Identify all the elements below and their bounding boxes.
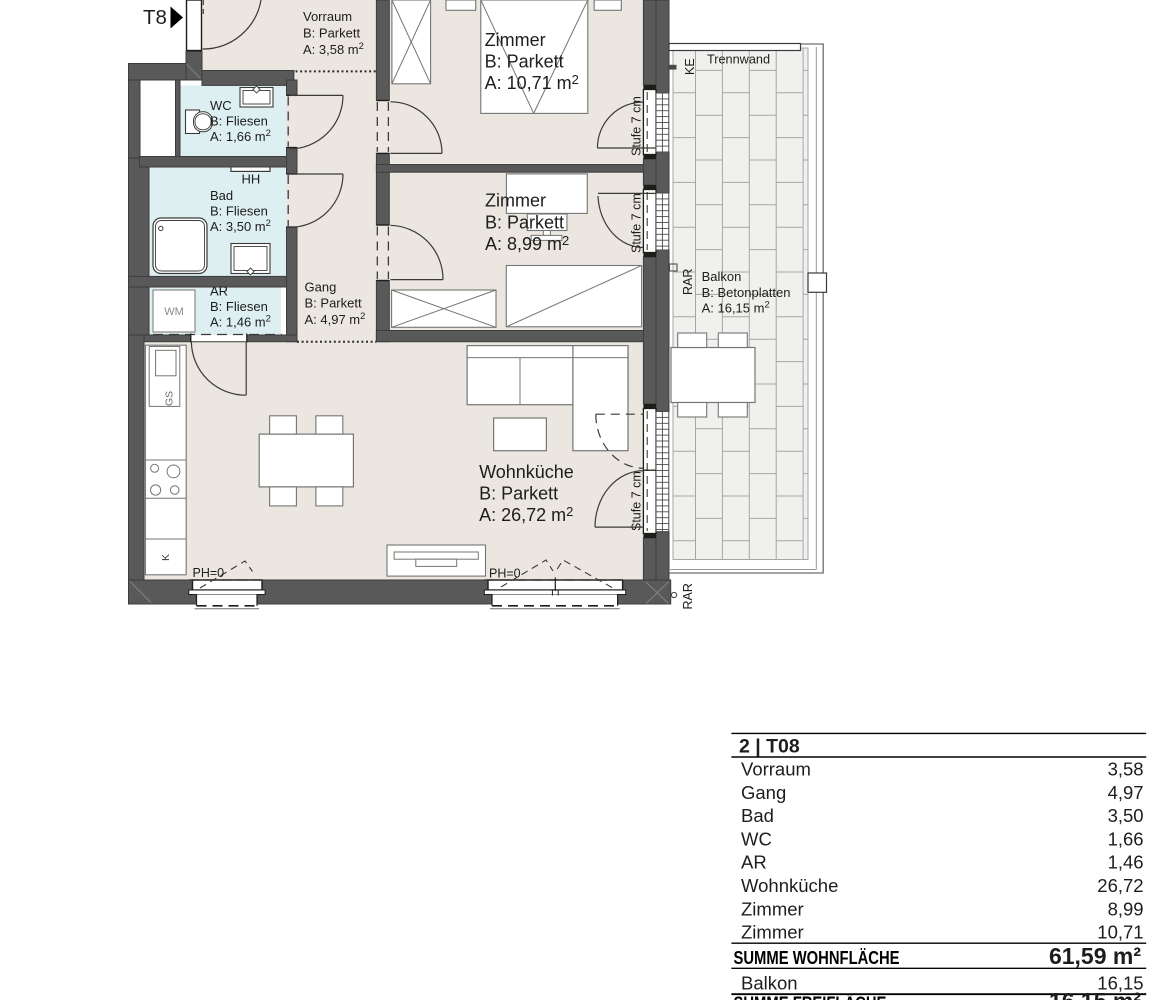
svg-text:10,71: 10,71 (1097, 922, 1143, 943)
svg-text:RAR: RAR (681, 583, 695, 609)
svg-text:Trennwand: Trennwand (707, 53, 770, 67)
svg-text:AR: AR (741, 852, 767, 873)
svg-text:A: 26,72 m2: A: 26,72 m2 (479, 504, 573, 525)
svg-text:Stufe 7 cm: Stufe 7 cm (630, 193, 644, 253)
svg-text:Gang: Gang (305, 280, 337, 295)
svg-text:4,97: 4,97 (1108, 782, 1144, 803)
svg-text:WM: WM (164, 306, 184, 318)
svg-text:A: 8,99 m2: A: 8,99 m2 (485, 233, 569, 254)
svg-text:WC: WC (210, 98, 232, 113)
svg-text:K: K (160, 554, 172, 561)
svg-text:1,66: 1,66 (1108, 828, 1144, 849)
svg-text:Vorraum: Vorraum (741, 759, 811, 780)
svg-text:AR: AR (210, 284, 228, 299)
svg-text:A: 3,58 m2: A: 3,58 m2 (303, 40, 364, 57)
svg-text:26,72: 26,72 (1097, 875, 1143, 896)
svg-text:B: Parkett: B: Parkett (485, 212, 564, 232)
svg-text:2 | T08: 2 | T08 (739, 736, 800, 758)
svg-text:Balkon: Balkon (702, 269, 742, 284)
svg-text:A: 10,71 m2: A: 10,71 m2 (485, 72, 579, 93)
svg-text:Vorraum: Vorraum (303, 9, 352, 24)
svg-text:16,15 m²: 16,15 m² (1049, 988, 1141, 1000)
svg-text:Zimmer: Zimmer (485, 191, 546, 211)
svg-text:A: 3,50 m2: A: 3,50 m2 (210, 217, 271, 234)
svg-text:Wohnküche: Wohnküche (479, 462, 574, 482)
svg-text:8,99: 8,99 (1108, 898, 1144, 919)
svg-text:A: 1,66 m2: A: 1,66 m2 (210, 127, 271, 144)
svg-text:B: Parkett: B: Parkett (305, 296, 362, 311)
svg-text:PH=0: PH=0 (193, 566, 225, 580)
svg-text:B: Fliesen: B: Fliesen (210, 299, 268, 314)
svg-text:B: Parkett: B: Parkett (303, 25, 360, 40)
svg-text:A: 16,15 m2: A: 16,15 m2 (702, 299, 770, 316)
svg-text:GS: GS (164, 391, 176, 406)
svg-text:PH=0: PH=0 (489, 567, 521, 581)
svg-text:SUMME FREIFLÄCHE: SUMME FREIFLÄCHE (734, 993, 887, 1000)
svg-text:SUMME WOHNFLÄCHE: SUMME WOHNFLÄCHE (734, 947, 900, 968)
svg-text:Zimmer: Zimmer (741, 898, 804, 919)
svg-text:Zimmer: Zimmer (485, 30, 546, 50)
svg-text:Gang: Gang (741, 782, 786, 803)
svg-text:B: Parkett: B: Parkett (485, 52, 564, 72)
svg-text:KE: KE (683, 58, 697, 75)
svg-text:Stufe 7 cm: Stufe 7 cm (630, 96, 644, 156)
svg-text:B: Parkett: B: Parkett (479, 484, 558, 504)
svg-text:Wohnküche: Wohnküche (741, 875, 838, 896)
svg-text:3,50: 3,50 (1108, 805, 1144, 826)
svg-text:A: 1,46 m2: A: 1,46 m2 (210, 313, 271, 330)
svg-text:B: Betonplatten: B: Betonplatten (702, 285, 791, 300)
svg-text:B: Fliesen: B: Fliesen (210, 114, 268, 129)
svg-text:WC: WC (741, 828, 772, 849)
svg-text:HH: HH (242, 172, 261, 187)
svg-text:61,59 m²: 61,59 m² (1049, 943, 1141, 969)
svg-text:Bad: Bad (210, 188, 233, 203)
svg-text:Balkon: Balkon (741, 972, 798, 993)
svg-text:Stufe 7 cm: Stufe 7 cm (630, 471, 644, 531)
svg-text:Bad: Bad (741, 805, 774, 826)
svg-text:A: 4,97 m2: A: 4,97 m2 (305, 310, 366, 327)
svg-text:3,58: 3,58 (1108, 759, 1144, 780)
svg-text:RAR: RAR (681, 269, 695, 295)
svg-text:1,46: 1,46 (1108, 852, 1144, 873)
svg-text:B: Fliesen: B: Fliesen (210, 204, 268, 219)
svg-text:Zimmer: Zimmer (741, 922, 804, 943)
svg-text:T8: T8 (143, 6, 167, 29)
